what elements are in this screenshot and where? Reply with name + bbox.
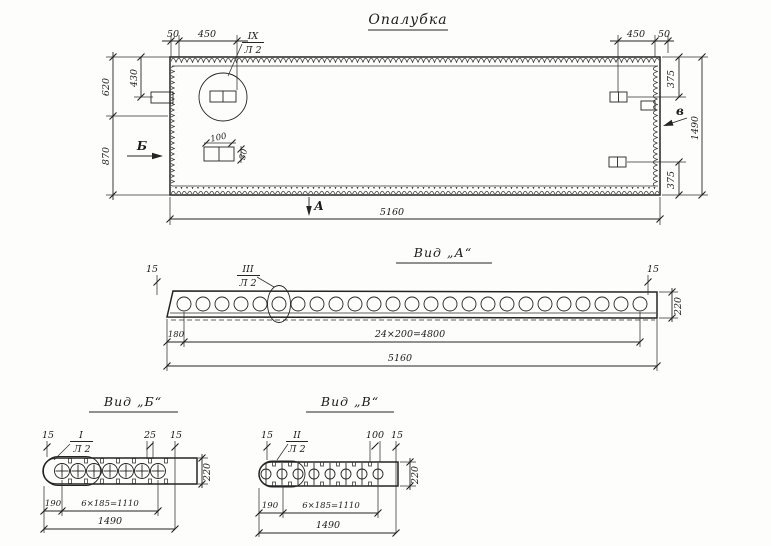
dim-top-50-right: 50 — [658, 29, 670, 40]
view-v-callout-number: II — [292, 430, 301, 441]
view-b-dim-15-right: 15 — [170, 430, 182, 441]
view-mark-a: А — [313, 199, 324, 213]
detail-callout-number: IX — [247, 31, 260, 42]
dim-left-430: 430 — [129, 69, 140, 88]
view-a-dim-15-left: 15 — [146, 264, 158, 275]
view-a-dim-220: 220 — [673, 297, 684, 316]
dim-bottom-5160: 5160 — [380, 207, 404, 218]
detail-callout-sheet: Л 2 — [244, 45, 262, 56]
view-v-dim-220: 220 — [410, 466, 421, 485]
view-v-dim-15-left: 15 — [261, 430, 273, 441]
view-b-title: Вид „Б“ — [103, 394, 162, 409]
view-a-drawing: Вид „А“ III Л 2 15 15 220 — [146, 245, 684, 371]
view-a-dim-spacing: 24×200=4800 — [374, 329, 445, 340]
view-v-dim-15-right: 15 — [391, 430, 403, 441]
view-a-title: Вид „А“ — [413, 245, 472, 260]
view-b-bolt-holes — [55, 464, 166, 479]
dim-top-50-left: 50 — [167, 29, 179, 40]
formwork-plan-view: Опалубка 50 450 450 50 IX Л 2 — [101, 12, 708, 225]
view-a-callout-sheet: Л 2 — [239, 278, 257, 289]
dim-left-870: 870 — [101, 147, 112, 165]
dim-right-1490: 1490 — [690, 116, 701, 140]
view-b-dim-15-left: 15 — [42, 430, 54, 441]
view-mark-b: Б — [136, 139, 147, 153]
dim-detail-30: 30 — [238, 147, 251, 161]
view-a-dim-total: 5160 — [388, 353, 412, 364]
view-b-dim-220: 220 — [202, 463, 213, 482]
view-b-dim-total: 1490 — [98, 516, 122, 527]
view-b-callout-sheet: Л 2 — [73, 444, 91, 455]
view-a-callout-number: III — [241, 264, 254, 275]
view-b-drawing: Вид „Б“ I Л 2 15 — [41, 394, 214, 533]
view-v-title: Вид „В“ — [320, 394, 379, 409]
view-mark-v: в — [676, 104, 684, 118]
view-v-dim-190: 190 — [262, 501, 279, 511]
dim-left-620: 620 — [101, 78, 112, 96]
dim-right-375-top: 375 — [666, 70, 677, 88]
dim-top-450-left: 450 — [197, 29, 216, 40]
view-v-drawing: Вид „В“ II Л 2 15 — [256, 394, 422, 537]
technical-drawing-canvas: Опалубка 50 450 450 50 IX Л 2 — [0, 0, 771, 546]
view-b-dim-spacing: 6×185=1110 — [81, 499, 139, 509]
view-b-callout-number: I — [78, 430, 83, 441]
sheet-title: Опалубка — [368, 12, 447, 28]
view-b-dim-190: 190 — [45, 499, 62, 509]
view-a-dim-180: 180 — [168, 330, 185, 340]
view-b-dim-25: 25 — [143, 430, 156, 441]
view-v-dim-spacing: 6×185=1110 — [302, 501, 360, 511]
view-v-dim-total: 1490 — [316, 520, 340, 531]
dim-top-450-right: 450 — [626, 29, 645, 40]
dim-right-375-bottom: 375 — [666, 171, 677, 189]
drawing-sheet: Опалубка 50 450 450 50 IX Л 2 — [0, 0, 771, 546]
view-a-dim-15-right: 15 — [647, 264, 659, 275]
view-v-callout-sheet: Л 2 — [288, 444, 306, 455]
view-v-dim-100: 100 — [366, 430, 384, 441]
